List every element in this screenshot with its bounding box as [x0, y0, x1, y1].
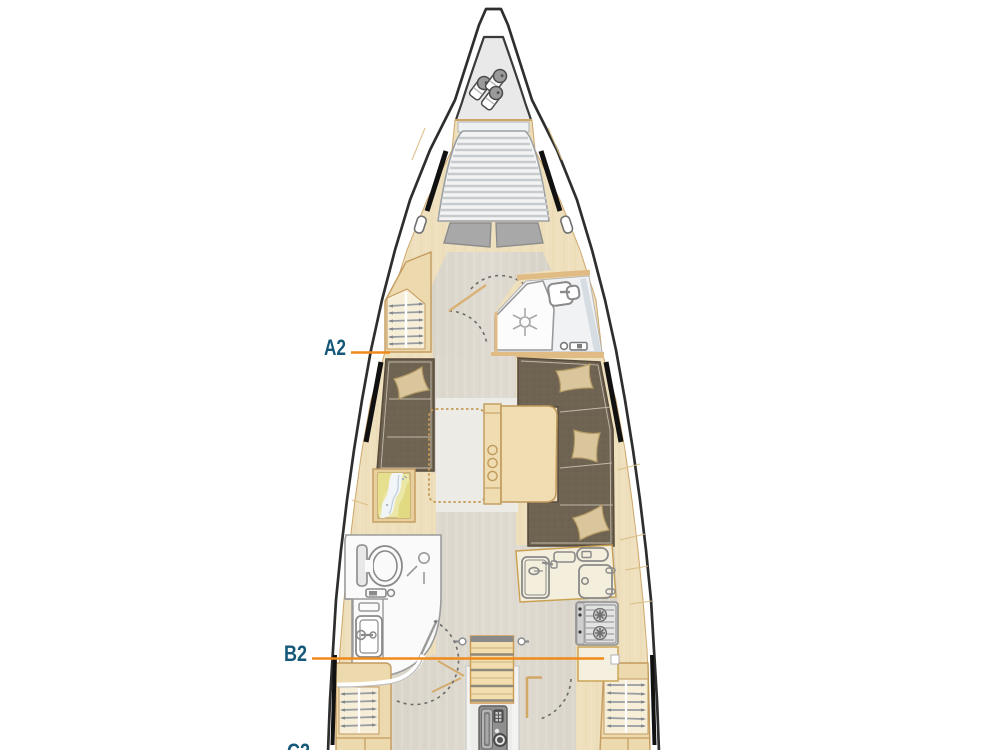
svg-text:A2: A2 [324, 335, 346, 360]
svg-text:B2: B2 [284, 641, 307, 666]
svg-text:C2: C2 [287, 739, 310, 750]
